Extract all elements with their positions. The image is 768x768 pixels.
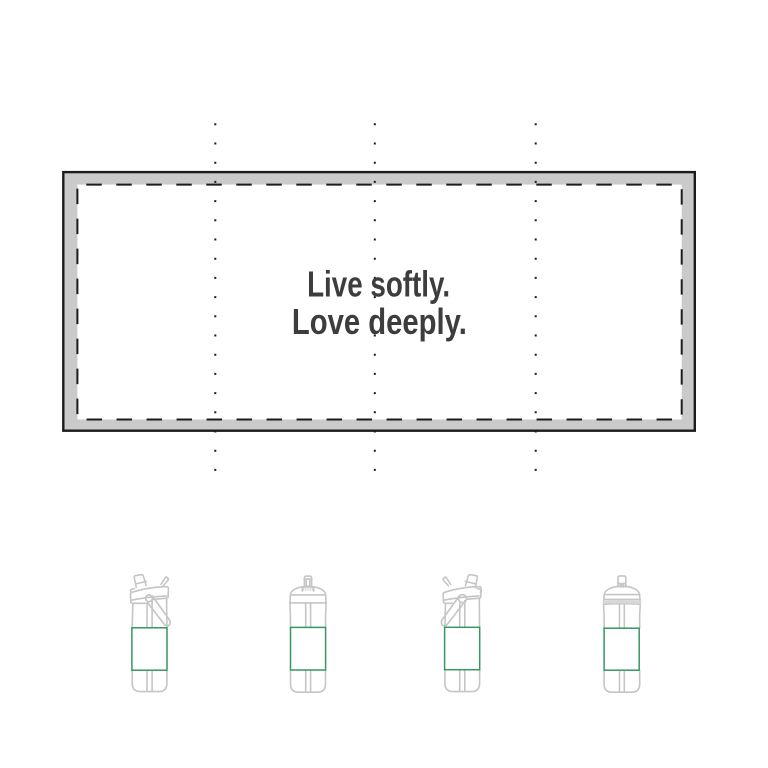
svg-text:Live softly.: Live softly. [307,264,450,304]
svg-text:Love deeply.: Love deeply. [292,302,467,342]
